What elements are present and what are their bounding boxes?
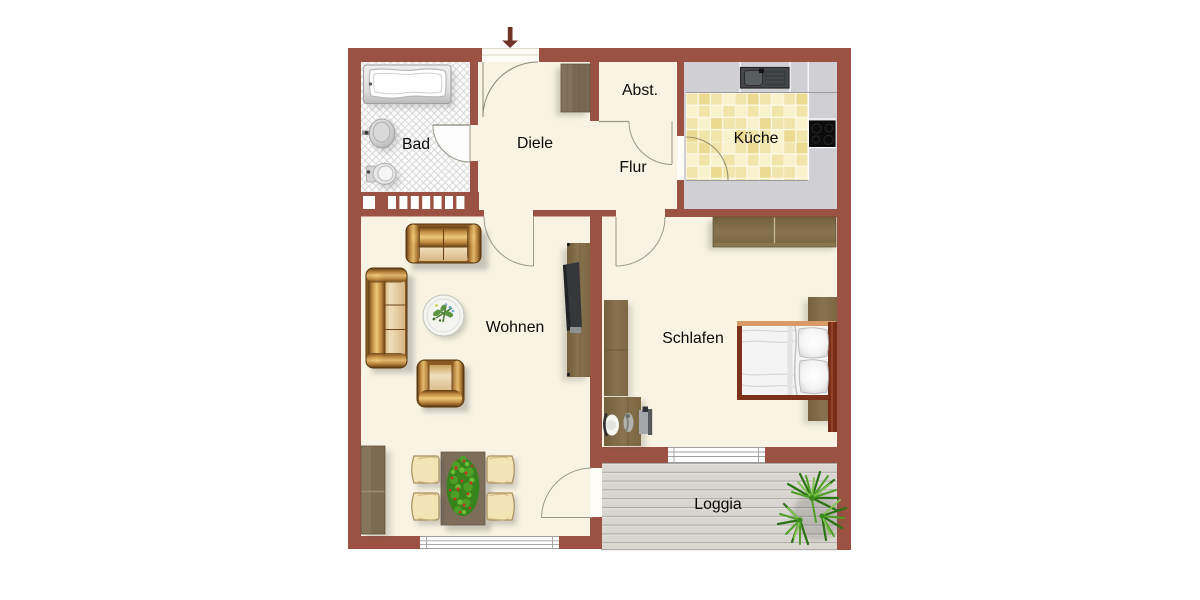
svg-text:Wohnen: Wohnen: [486, 319, 545, 336]
svg-text:Flur: Flur: [619, 159, 646, 176]
svg-text:Diele: Diele: [517, 135, 553, 152]
svg-text:Abst.: Abst.: [622, 82, 658, 99]
svg-text:Bad: Bad: [402, 136, 430, 153]
svg-text:Küche: Küche: [734, 130, 779, 147]
svg-text:Loggia: Loggia: [694, 496, 742, 513]
svg-text:Schlafen: Schlafen: [662, 330, 723, 347]
